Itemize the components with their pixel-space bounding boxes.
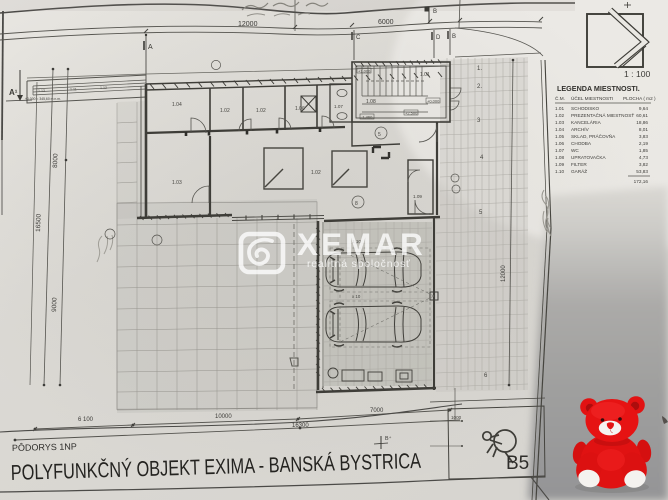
svg-text:ÚČEL MIESTNOSTI: ÚČEL MIESTNOSTI [571, 95, 613, 101]
svg-text:8000: 8000 [52, 153, 60, 168]
svg-text:KANCELÁRIA: KANCELÁRIA [571, 119, 602, 125]
svg-text:1.05: 1.05 [555, 134, 565, 139]
svg-text:1,85: 1,85 [639, 148, 649, 153]
svg-text:1.02: 1.02 [311, 170, 321, 176]
svg-text:PLOCHA ( m2 ): PLOCHA ( m2 ) [623, 96, 656, 101]
svg-text:1000: 1000 [451, 415, 462, 420]
svg-text:FILTER: FILTER [571, 162, 587, 167]
svg-text:B: B [452, 34, 456, 40]
svg-text:A¹: A¹ [9, 88, 18, 97]
svg-text:1.02: 1.02 [555, 113, 565, 118]
svg-text:SKLAD, PRÁČOVŇA: SKLAD, PRÁČOVŇA [571, 133, 616, 139]
svg-text:ARCHÍV: ARCHÍV [571, 126, 590, 132]
svg-text:3,83: 3,83 [639, 134, 649, 139]
svg-text:53,83: 53,83 [636, 169, 648, 174]
svg-text:XEMAR: XEMAR [297, 226, 426, 262]
svg-text:12000: 12000 [238, 21, 258, 28]
svg-text:x 10: x 10 [352, 294, 361, 299]
svg-text:B5: B5 [506, 453, 529, 474]
svg-text:B⁺: B⁺ [385, 436, 392, 442]
svg-text:+1,000: +1,000 [358, 68, 371, 73]
svg-text:16300: 16300 [292, 423, 309, 429]
svg-text:3,82: 3,82 [639, 162, 649, 167]
svg-text:6000: 6000 [378, 19, 394, 26]
svg-text:-1,460: -1,460 [361, 114, 373, 119]
svg-text:1.04: 1.04 [172, 102, 182, 108]
svg-text:8,01: 8,01 [639, 127, 649, 132]
svg-text:6 100: 6 100 [78, 417, 94, 423]
svg-text:CHODBA: CHODBA [571, 141, 592, 146]
svg-text:18,86: 18,86 [636, 120, 648, 125]
svg-text:2,19: 2,19 [639, 141, 649, 146]
svg-text:9,64: 9,64 [639, 106, 649, 111]
svg-text:1.07: 1.07 [555, 148, 565, 153]
svg-text:1.: 1. [477, 66, 482, 72]
svg-text:1.02: 1.02 [220, 108, 230, 114]
svg-text:1.03: 1.03 [172, 180, 182, 186]
svg-text:1.07: 1.07 [334, 104, 343, 109]
svg-text:PREZENTAČNÁ MIESTNOSŤ: PREZENTAČNÁ MIESTNOSŤ [571, 111, 634, 118]
svg-text:1.09: 1.09 [413, 194, 422, 199]
svg-text:1.01: 1.01 [555, 106, 565, 111]
svg-text:12000: 12000 [501, 265, 507, 282]
svg-text:+0,000: +0,000 [427, 98, 440, 103]
svg-text:60,61: 60,61 [636, 113, 648, 118]
svg-text:realitná spoločnosť: realitná spoločnosť [307, 258, 411, 270]
svg-text:Č.M.: Č.M. [555, 95, 565, 101]
svg-text:5: 5 [378, 132, 381, 138]
svg-text:1.03: 1.03 [555, 120, 565, 125]
svg-text:1 : 100: 1 : 100 [624, 69, 651, 79]
svg-text:10000: 10000 [215, 414, 232, 420]
svg-text:1.10: 1.10 [555, 169, 565, 174]
svg-text:UPRATOVAČKA: UPRATOVAČKA [571, 154, 607, 160]
svg-text:B: B [433, 9, 437, 15]
svg-text:+2,500: +2,500 [405, 110, 418, 115]
svg-text:SCHODISKO: SCHODISKO [571, 106, 599, 111]
svg-text:+0,000 = 345,60 m n.m.: +0,000 = 345,60 m n.m. [25, 97, 61, 101]
svg-text:LEGENDA MIESTNOSTI.: LEGENDA MIESTNOSTI. [557, 84, 640, 93]
svg-text:D: D [436, 35, 441, 41]
svg-text:GARÁŽ: GARÁŽ [571, 167, 587, 174]
svg-text:9000: 9000 [51, 297, 59, 312]
svg-text:C: C [356, 35, 361, 41]
svg-text:WC: WC [571, 148, 579, 153]
svg-text:1.01: 1.01 [420, 72, 430, 78]
svg-text:2.: 2. [477, 84, 482, 90]
svg-text:7000: 7000 [370, 408, 384, 414]
svg-text:1.11: 1.11 [70, 88, 77, 92]
svg-text:1.09: 1.09 [555, 162, 565, 167]
svg-text:8: 8 [355, 201, 358, 207]
svg-text:1.06: 1.06 [555, 141, 565, 146]
svg-text:172,16: 172,16 [634, 179, 649, 184]
svg-text:A: A [148, 44, 153, 51]
svg-text:1.08: 1.08 [366, 99, 376, 105]
svg-text:PÔDORYS 1NP: PÔDORYS 1NP [12, 442, 77, 453]
svg-text:1.13: 1.13 [38, 89, 45, 93]
svg-text:1.04: 1.04 [555, 127, 565, 132]
svg-text:1.08: 1.08 [555, 155, 565, 160]
svg-text:1.12: 1.12 [100, 86, 107, 90]
svg-text:16500: 16500 [35, 213, 43, 232]
svg-text:4,73: 4,73 [639, 155, 649, 160]
svg-text:1.02: 1.02 [256, 108, 266, 114]
